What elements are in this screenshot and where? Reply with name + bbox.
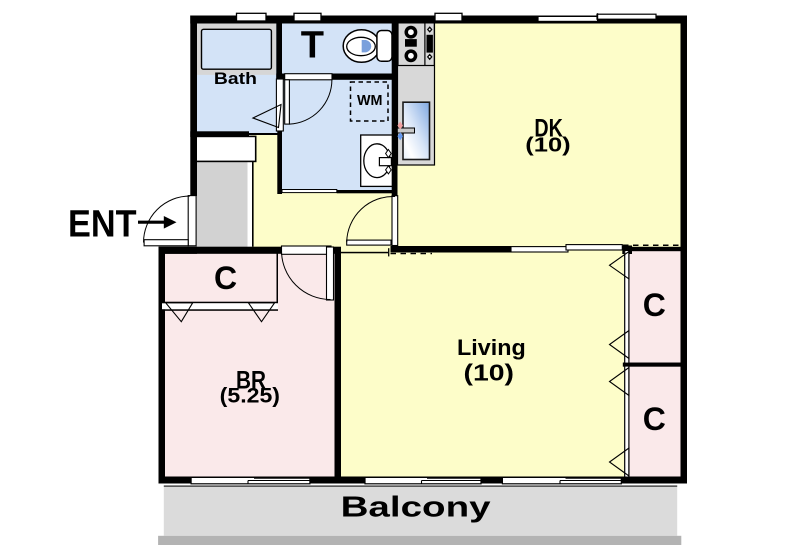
svg-text:C: C <box>643 287 666 323</box>
svg-text:Living: Living <box>457 335 526 360</box>
svg-text:(5.25): (5.25) <box>220 385 280 408</box>
svg-text:WM: WM <box>357 92 383 109</box>
svg-text:Bath: Bath <box>214 69 257 88</box>
svg-text:C: C <box>643 401 666 437</box>
svg-text:C: C <box>214 260 237 296</box>
svg-text:(10): (10) <box>464 359 515 385</box>
svg-text:(10): (10) <box>525 135 570 157</box>
svg-text:ENT: ENT <box>68 204 137 246</box>
svg-text:Balcony: Balcony <box>341 492 491 524</box>
svg-text:T: T <box>301 25 324 67</box>
